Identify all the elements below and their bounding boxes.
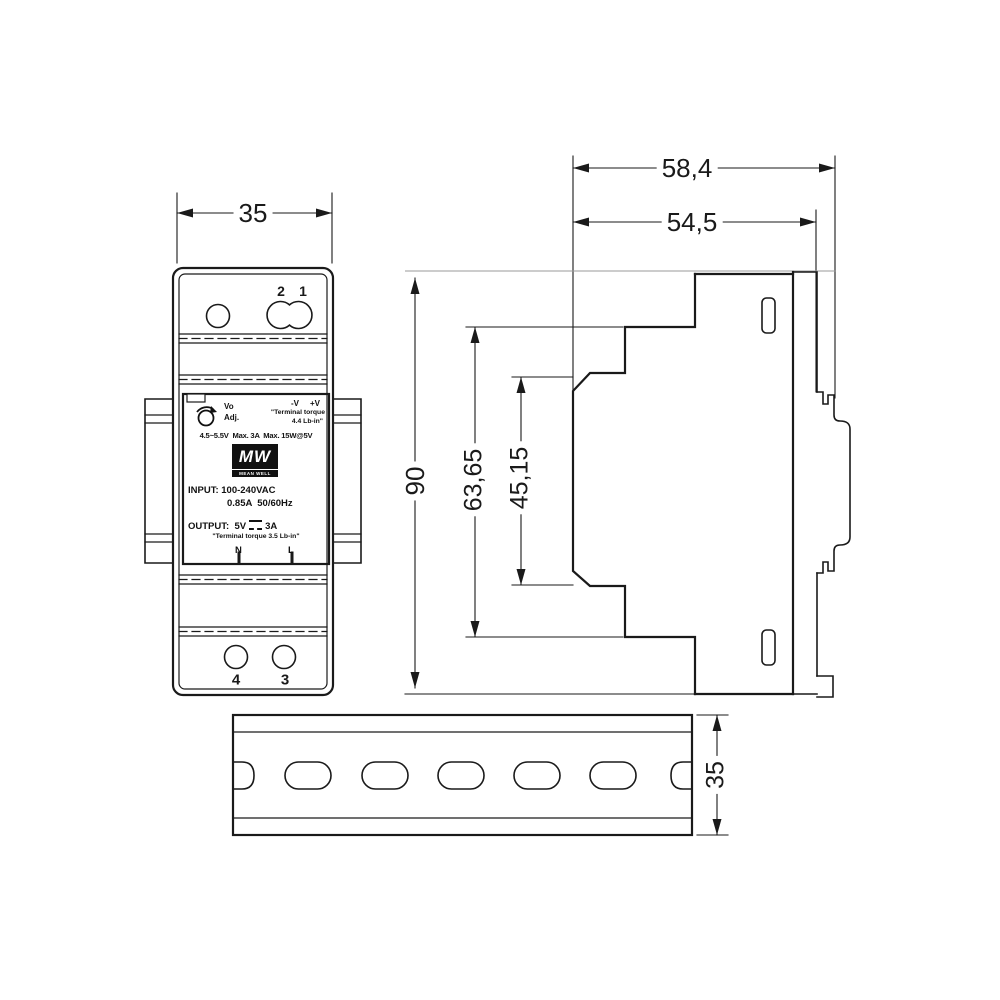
terminal-hole-3 bbox=[273, 646, 296, 669]
vent-slot-bottom bbox=[762, 630, 775, 665]
label-adj: Adj. bbox=[224, 414, 239, 422]
label-pos-terminal: +V bbox=[310, 400, 320, 408]
vent-slot-top bbox=[762, 298, 775, 333]
side-depth-overall-dim-text: 58,4 bbox=[657, 155, 718, 181]
technical-drawing-canvas: 35 58,4 54,5 90 63,65 45,15 35 2 1 4 3 V… bbox=[0, 0, 1000, 1000]
rail-slot-5 bbox=[590, 762, 636, 789]
label-output-current: 3A bbox=[265, 521, 277, 532]
front-width-dim-text: 35 bbox=[234, 200, 273, 226]
terminal-number-1: 1 bbox=[299, 284, 307, 298]
din-rail-linework bbox=[233, 715, 728, 835]
label-vo: Vo bbox=[224, 403, 234, 411]
side-depth-dimensions-linework bbox=[573, 156, 835, 398]
din-rail-right-stub bbox=[333, 399, 361, 563]
label-torque-bottom: "Terminal torque 3.5 Lb-in" bbox=[184, 534, 328, 541]
label-torque-line1: "Terminal torque bbox=[271, 410, 325, 417]
din-clip-latch-foot bbox=[817, 676, 833, 697]
din-rail-left-stub bbox=[145, 399, 173, 563]
din-bracket-plate bbox=[793, 272, 817, 694]
rail-slot-3 bbox=[438, 762, 484, 789]
meanwell-logo-brand: MEAN WELL bbox=[232, 470, 278, 477]
label-terminal-l: L bbox=[288, 546, 294, 556]
din-clip-spring bbox=[817, 392, 850, 573]
label-torque-line2: 4.4 Lb-in" bbox=[292, 419, 323, 426]
product-label: Vo Adj. -V +V "Terminal torque 4.4 Lb-in… bbox=[184, 395, 328, 564]
meanwell-logo-mw: MW bbox=[232, 444, 278, 469]
meanwell-logo: MW MEAN WELL bbox=[232, 444, 278, 477]
label-neg-terminal: -V bbox=[291, 400, 299, 408]
label-output-line: OUTPUT: 5V3A bbox=[188, 520, 277, 533]
rail-slot-4 bbox=[514, 762, 560, 789]
label-input-line2: 0.85A 50/60Hz bbox=[227, 499, 293, 509]
terminal-number-4: 4 bbox=[232, 673, 240, 688]
top-mount-hole bbox=[207, 305, 230, 328]
drawing-linework bbox=[0, 0, 1000, 1000]
side-depth-body-dim-text: 54,5 bbox=[662, 209, 723, 235]
rail-slot-1 bbox=[285, 762, 331, 789]
terminal-number-3: 3 bbox=[281, 673, 289, 688]
side-body-top-bottom-edges bbox=[695, 274, 793, 694]
terminal-number-2: 2 bbox=[277, 284, 285, 298]
label-output-prefix: OUTPUT: 5V bbox=[188, 521, 246, 532]
label-input-line1: INPUT: 100-240VAC bbox=[188, 486, 275, 496]
label-output-spec: 4.5~5.5V Max. 3A Max. 15W@5V bbox=[184, 432, 328, 440]
side-view-body bbox=[573, 272, 850, 697]
side-body-profile bbox=[573, 274, 695, 694]
terminal-hole-4 bbox=[225, 646, 248, 669]
side-height-upper-dim-text: 63,65 bbox=[462, 444, 487, 517]
side-height-overall-dim-text: 90 bbox=[402, 462, 428, 501]
label-terminal-n: N bbox=[235, 546, 242, 556]
dc-symbol-icon bbox=[249, 520, 262, 530]
rail-slot-2 bbox=[362, 762, 408, 789]
terminal-holes-2-1 bbox=[267, 301, 312, 328]
potentiometer-icon bbox=[192, 401, 222, 429]
rail-half-slot-left bbox=[233, 762, 254, 789]
rail-height-dim-text: 35 bbox=[704, 756, 729, 794]
side-height-inner-dim-text: 45,15 bbox=[508, 442, 533, 515]
rail-half-slot-right bbox=[671, 762, 692, 789]
